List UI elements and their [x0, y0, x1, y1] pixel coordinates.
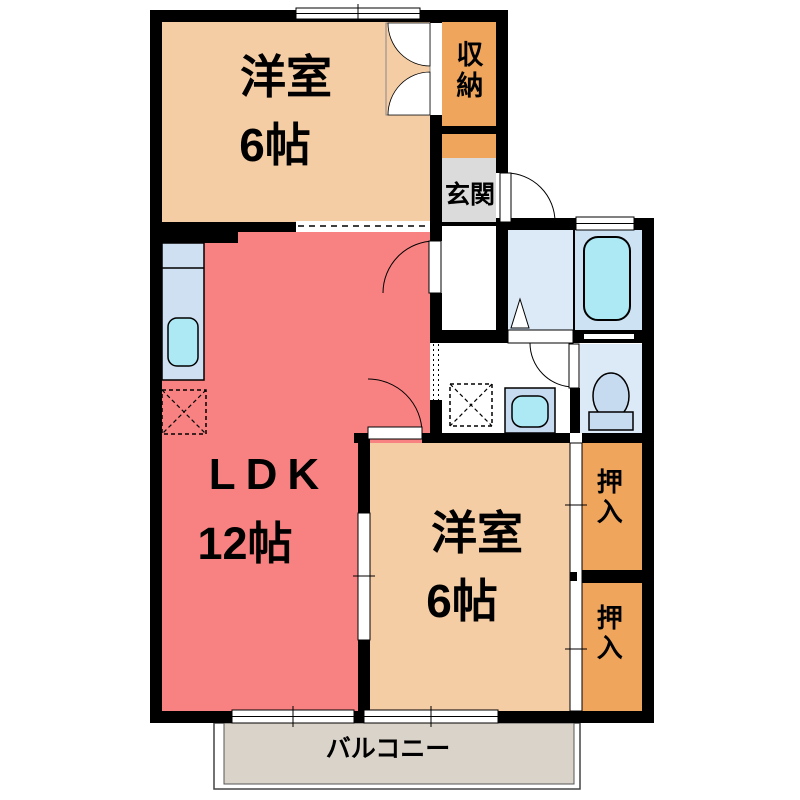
wash-basin-icon — [512, 396, 548, 427]
toilet-door-slit — [584, 334, 634, 339]
wall — [162, 230, 238, 243]
wall — [496, 230, 508, 330]
label-bedroom-bottom-size: 6帖 — [362, 577, 562, 625]
wall — [422, 433, 570, 443]
label-storage: 収納 — [453, 40, 481, 102]
kitchen-sink-icon — [168, 318, 198, 366]
label-bedroom-top-size: 6帖 — [175, 121, 375, 169]
label-closet-upper: 押入 — [594, 468, 621, 528]
wall — [430, 232, 442, 241]
door-swing-arc — [530, 343, 574, 387]
shoe-cabinet — [442, 134, 496, 158]
label-closet-lower: 押入 — [594, 604, 621, 664]
door-leaf — [569, 344, 579, 388]
toilet-tank-icon — [589, 412, 633, 430]
label-balcony: バルコニー — [288, 736, 488, 762]
wall — [572, 570, 654, 583]
label-bedroom-bottom: 洋室 — [377, 509, 577, 557]
floor-plan-drawing — [0, 0, 800, 800]
open-boundary — [430, 344, 442, 400]
wall — [442, 126, 496, 134]
label-entrance: 玄関 — [420, 182, 520, 208]
washroom-doorway — [508, 330, 573, 343]
bathtub-icon — [584, 237, 630, 320]
label-ldk: LDK — [169, 452, 369, 498]
door-leaf — [368, 427, 422, 439]
wall — [430, 115, 442, 232]
wall — [642, 218, 654, 723]
wall — [430, 10, 442, 23]
wall — [496, 10, 508, 173]
label-ldk-size: 12帖 — [145, 520, 345, 567]
entrance-step-line — [442, 222, 496, 226]
door-leaf — [429, 241, 441, 293]
wall — [150, 10, 162, 723]
wall — [358, 640, 370, 711]
wall-nub — [570, 572, 577, 581]
floor-plan: 洋室 6帖 LDK 12帖 洋室 6帖 収納 玄関 押入 押入 バルコニー — [0, 0, 800, 800]
label-bedroom-top: 洋室 — [186, 53, 386, 101]
wall — [430, 293, 442, 332]
wall — [430, 400, 442, 433]
wall — [570, 388, 580, 433]
